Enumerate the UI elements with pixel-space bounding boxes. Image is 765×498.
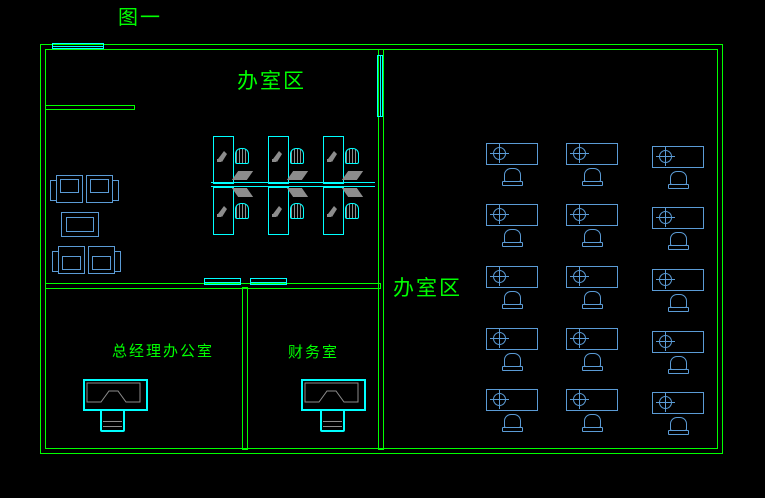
crosshair-icon: [659, 335, 672, 348]
figure-label: 图一: [118, 6, 162, 28]
desk: [486, 266, 538, 288]
chair: [290, 148, 304, 164]
workstation-desk: [213, 187, 234, 235]
chair: [345, 148, 359, 164]
chair: [670, 171, 687, 185]
crosshair-icon: [573, 332, 586, 345]
chair: [504, 229, 521, 243]
crosshair-icon: [493, 208, 506, 221]
crosshair-icon: [573, 147, 586, 160]
wall-lower-room-divider: [242, 287, 248, 450]
chair: [504, 168, 521, 182]
desk: [652, 207, 704, 229]
sofa-seat: [86, 175, 113, 203]
window-middle-right: [250, 278, 287, 285]
sofa-bottom: [58, 246, 115, 274]
crosshair-icon: [493, 270, 506, 283]
label-open-office-right: 办室区: [393, 277, 462, 300]
workstation-desk: [323, 187, 344, 235]
label-manager-office: 总经理办公室: [112, 343, 214, 360]
desk: [566, 143, 618, 165]
chair: [670, 294, 687, 308]
crosshair-icon: [659, 211, 672, 224]
chair: [584, 168, 601, 182]
crosshair-icon: [659, 150, 672, 163]
crosshair-icon: [493, 332, 506, 345]
chair: [345, 203, 359, 219]
desk: [652, 392, 704, 414]
chair: [584, 353, 601, 367]
desk: [566, 266, 618, 288]
window-partition: [377, 55, 383, 117]
workstation-desk: [268, 187, 289, 235]
label-open-office-top: 办室区: [237, 70, 306, 93]
coffee-table: [61, 212, 99, 237]
chair: [235, 148, 249, 164]
crosshair-icon: [493, 393, 506, 406]
finance-chair: [320, 409, 345, 432]
window-top: [52, 43, 104, 49]
chair: [670, 232, 687, 246]
workstation-partition-line: [211, 182, 375, 183]
floor-plan: 图一 办室区 办室区 总经理办公室 财务室: [0, 0, 765, 498]
monitor-icon: [271, 204, 284, 219]
chair: [584, 229, 601, 243]
chair: [584, 291, 601, 305]
crosshair-icon: [659, 273, 672, 286]
workstation-desk: [323, 136, 344, 184]
crosshair-icon: [659, 396, 672, 409]
chair: [504, 353, 521, 367]
workstation-desk: [213, 136, 234, 184]
label-finance-room: 财务室: [288, 344, 339, 361]
desk: [652, 331, 704, 353]
chair: [670, 356, 687, 370]
crosshair-icon: [573, 393, 586, 406]
desk: [486, 389, 538, 411]
monitor-icon: [326, 149, 339, 164]
chair: [235, 203, 249, 219]
sofa-top: [56, 175, 113, 203]
crosshair-icon: [573, 208, 586, 221]
sofa-seat: [58, 246, 85, 274]
desk: [486, 204, 538, 226]
desk: [566, 204, 618, 226]
chair: [504, 414, 521, 428]
chair: [584, 414, 601, 428]
monitor-icon: [326, 204, 339, 219]
manager-chair: [100, 409, 125, 432]
finance-desk: [301, 379, 366, 411]
chair: [504, 291, 521, 305]
crosshair-icon: [493, 147, 506, 160]
workstation-desk: [268, 136, 289, 184]
desk: [652, 146, 704, 168]
monitor-icon: [271, 149, 284, 164]
sofa-seat: [88, 246, 115, 274]
wall-entry-stub: [45, 105, 135, 110]
chair: [290, 203, 304, 219]
workstation-partition-line: [211, 186, 375, 187]
chair: [670, 417, 687, 431]
monitor-icon: [216, 204, 229, 219]
window-middle-left: [204, 278, 241, 285]
desk: [652, 269, 704, 291]
sofa-seat: [56, 175, 83, 203]
crosshair-icon: [573, 270, 586, 283]
desk: [566, 328, 618, 350]
desk: [566, 389, 618, 411]
desk: [486, 328, 538, 350]
manager-desk: [83, 379, 148, 411]
monitor-icon: [216, 149, 229, 164]
desk: [486, 143, 538, 165]
